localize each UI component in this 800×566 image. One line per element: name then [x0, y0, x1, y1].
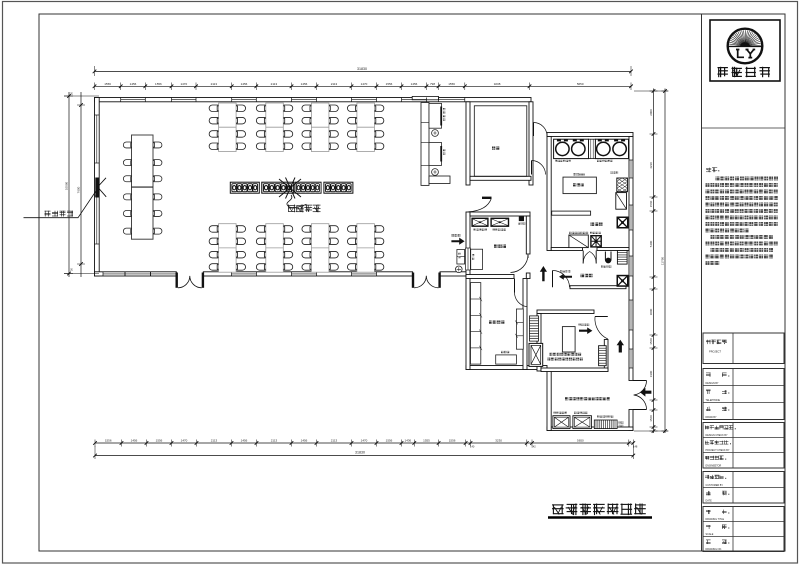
svg-text:1456: 1456	[301, 82, 308, 86]
svg-text:2113: 2113	[331, 439, 338, 443]
svg-text:2113: 2113	[271, 439, 278, 443]
svg-text:5650: 5650	[577, 82, 584, 86]
svg-text:PROJECT: PROJECT	[709, 350, 722, 354]
svg-text:1556: 1556	[155, 82, 162, 86]
svg-text:TELEPHONE: TELEPHONE	[706, 399, 721, 402]
svg-text:3000: 3000	[649, 308, 653, 315]
svg-text:798: 798	[430, 82, 435, 86]
svg-text:11790: 11790	[661, 257, 665, 265]
svg-text:DESIGN BY: DESIGN BY	[706, 382, 719, 385]
svg-text:3300: 3300	[649, 370, 653, 377]
svg-text:1470: 1470	[181, 439, 188, 443]
svg-text:140: 140	[470, 445, 475, 449]
svg-text:1456: 1456	[241, 82, 248, 86]
svg-text:1556: 1556	[448, 82, 455, 86]
svg-text:CUSTOMER BY: CUSTOMER BY	[706, 484, 724, 487]
svg-text:1560: 1560	[649, 415, 653, 422]
svg-text:1470: 1470	[361, 82, 368, 86]
svg-text:4230: 4230	[649, 162, 653, 169]
svg-text:3208: 3208	[494, 82, 501, 86]
svg-text:SCALE: SCALE	[706, 533, 714, 536]
svg-text:1556: 1556	[104, 82, 111, 86]
svg-text:31830: 31830	[357, 67, 367, 71]
svg-text:2113: 2113	[271, 82, 278, 86]
svg-text:1555: 1555	[423, 439, 430, 443]
svg-text:DRAW BY: DRAW BY	[706, 416, 717, 419]
svg-text:2113: 2113	[211, 439, 218, 443]
svg-text:1556: 1556	[105, 439, 112, 443]
svg-text:2113: 2113	[211, 82, 218, 86]
svg-text:1436: 1436	[405, 439, 412, 443]
svg-text:1556: 1556	[386, 82, 393, 86]
svg-text:10090: 10090	[65, 181, 69, 190]
svg-text:148: 148	[633, 445, 638, 449]
svg-text:5650: 5650	[577, 439, 584, 443]
svg-text:1556: 1556	[449, 439, 456, 443]
svg-text:DRAWING NO.: DRAWING NO.	[706, 548, 723, 551]
svg-text:1556: 1556	[386, 439, 393, 443]
svg-text:1560: 1560	[649, 338, 653, 345]
svg-text:1470: 1470	[361, 439, 368, 443]
svg-text:PROJECT CHECK BY: PROJECT CHECK BY	[706, 449, 730, 452]
svg-text:3230: 3230	[495, 439, 502, 443]
svg-text:1456: 1456	[241, 439, 248, 443]
svg-text:1456: 1456	[411, 82, 418, 86]
svg-text:1456: 1456	[301, 439, 308, 443]
svg-text:7600: 7600	[77, 186, 81, 193]
svg-text:1470: 1470	[180, 82, 187, 86]
svg-text:DRAWING TITLE: DRAWING TITLE	[706, 518, 725, 521]
svg-text:2113: 2113	[331, 82, 338, 86]
svg-text:DESIGN CHECK BY: DESIGN CHECK BY	[706, 434, 728, 437]
svg-text:31830: 31830	[355, 451, 365, 455]
svg-text:DATE: DATE	[706, 500, 713, 503]
svg-text:1556: 1556	[156, 439, 163, 443]
svg-text:142: 142	[531, 445, 536, 449]
svg-text:2000: 2000	[649, 109, 653, 116]
svg-text:ENGINEETOR: ENGINEETOR	[706, 465, 722, 468]
svg-text:1456: 1456	[131, 439, 138, 443]
svg-text:5400: 5400	[649, 240, 653, 247]
svg-text:1456: 1456	[130, 82, 137, 86]
svg-text:1560: 1560	[649, 200, 653, 207]
